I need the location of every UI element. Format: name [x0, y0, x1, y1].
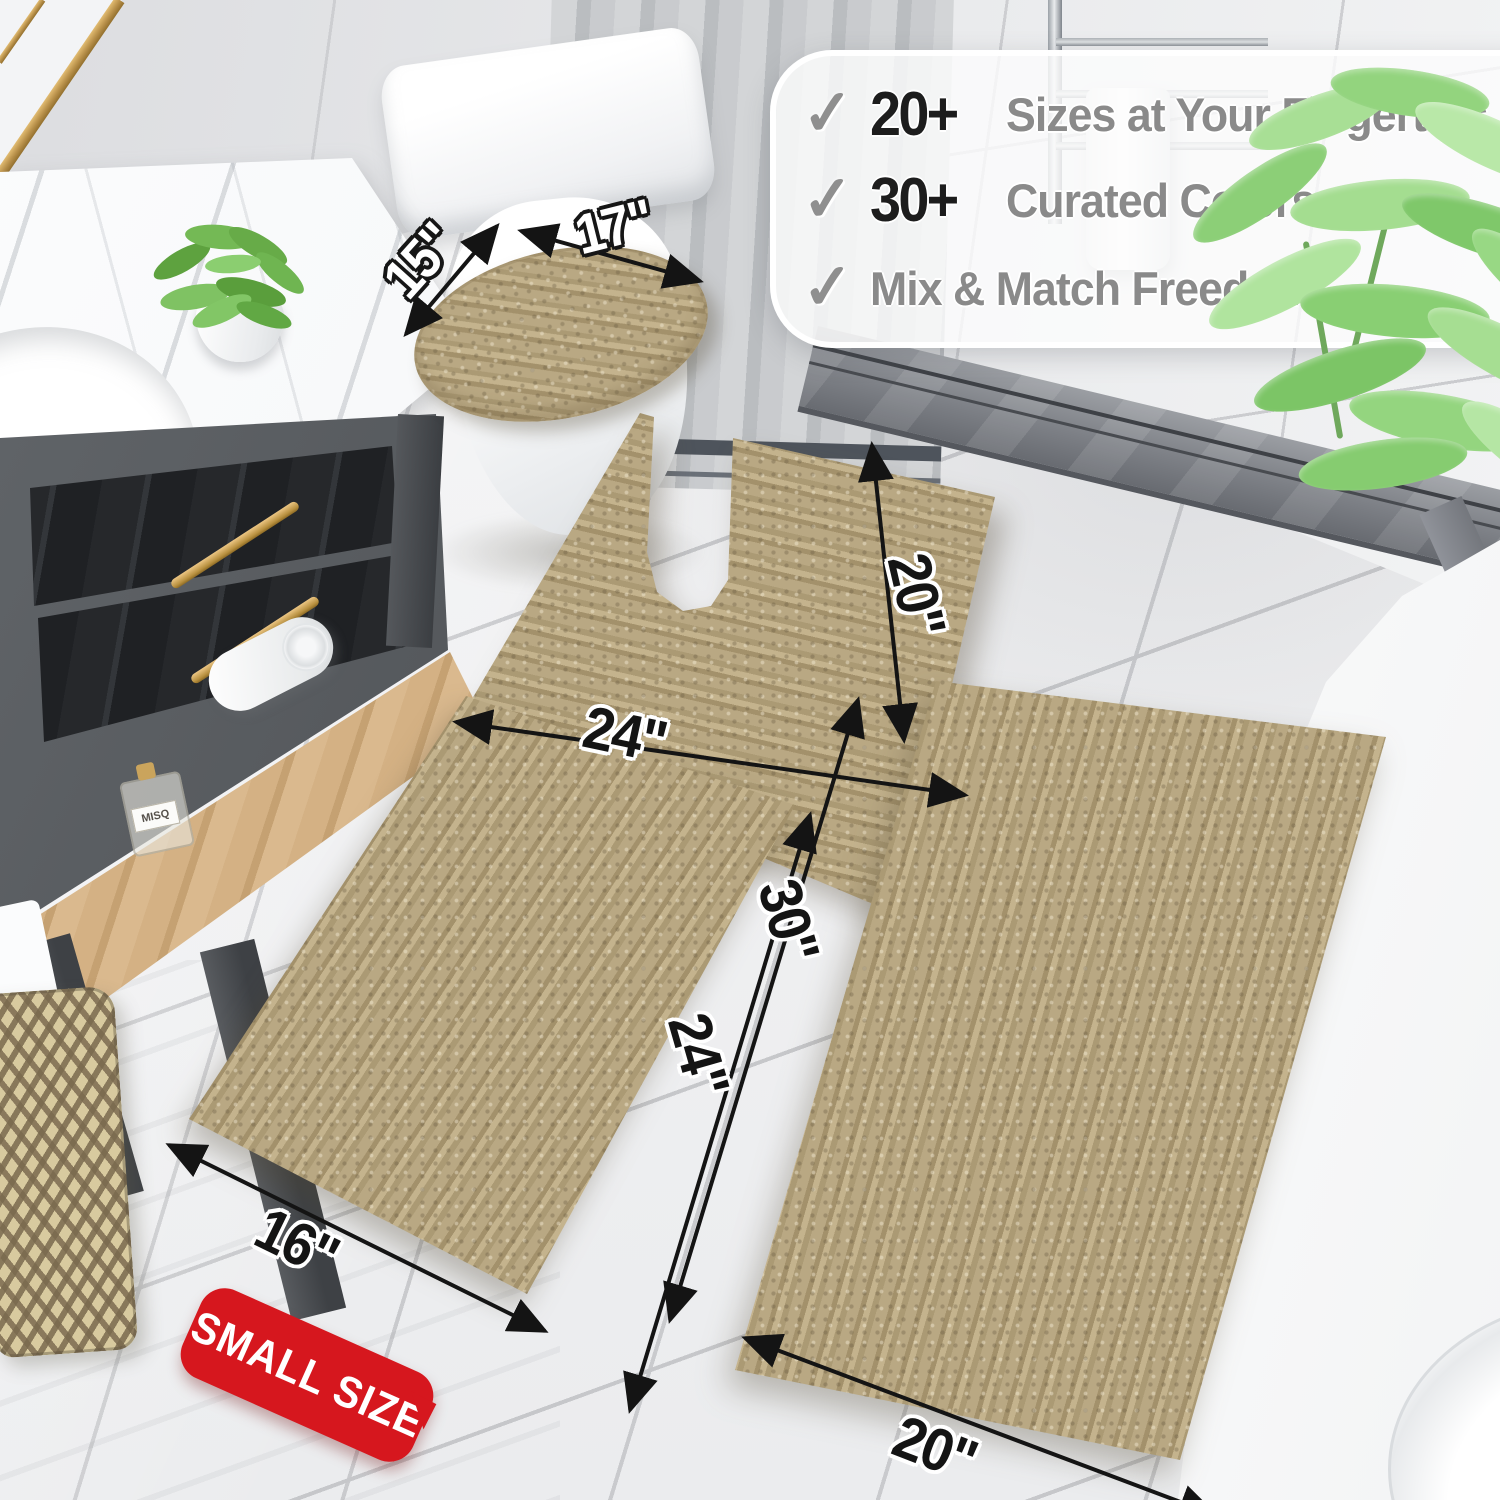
- check-icon: ✓: [800, 255, 856, 320]
- bathroom-product-scene: MISQ 17" 15" 24" 20" 30" 24" 16" 20": [0, 0, 1500, 1500]
- check-icon: ✓: [800, 167, 856, 232]
- banner-number: 30+: [870, 165, 992, 236]
- check-icon: ✓: [800, 81, 856, 146]
- banner-number: 20+: [870, 79, 992, 150]
